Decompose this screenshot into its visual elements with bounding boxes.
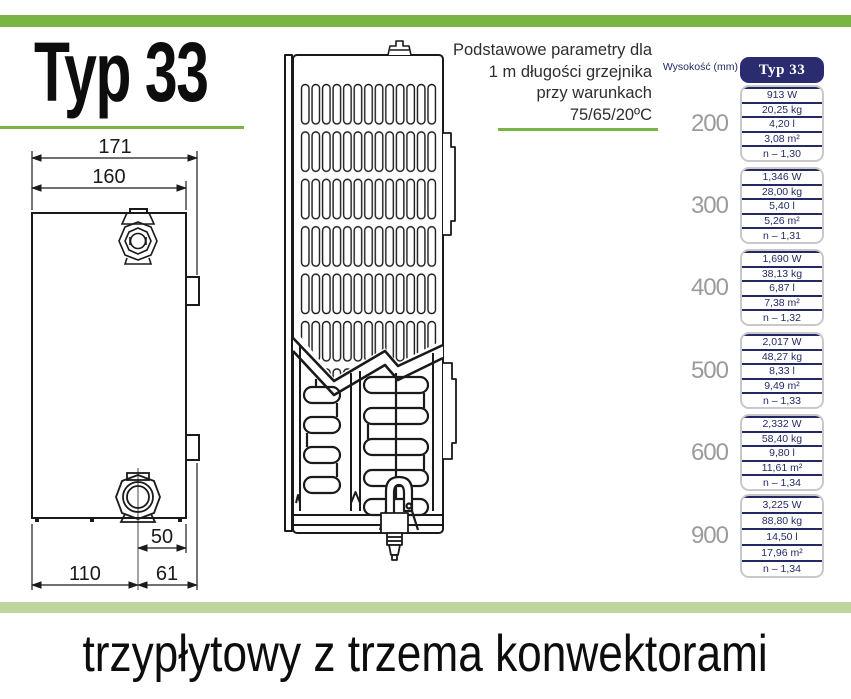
- radiator-front-drawing: [256, 33, 481, 593]
- value-cell: 5,40 l: [742, 200, 822, 215]
- value-cell: 48,27 kg: [742, 351, 822, 366]
- value-cell: n – 1,31: [742, 229, 822, 242]
- table-group-600: 600 2,332 W 58,40 kg 9,80 l 11,61 m² n –…: [610, 414, 824, 491]
- dim-offset-left: 110: [69, 563, 101, 585]
- radiator-side-drawing: 171 160 50 110 61: [15, 138, 215, 603]
- wall-bracket-lower: [186, 435, 199, 460]
- value-cell: 58,40 kg: [742, 433, 822, 448]
- value-cell: 88,80 kg: [742, 514, 822, 530]
- table-group-400: 400 1,690 W 38,13 kg 6,87 l 7,38 m² n – …: [610, 249, 824, 326]
- height-label: 600: [610, 439, 740, 467]
- value-cell: 3,08 m²: [742, 133, 822, 148]
- values-box: 2,332 W 58,40 kg 9,80 l 11,61 m² n – 1,3…: [740, 414, 824, 491]
- value-cell: 913 W: [742, 87, 822, 104]
- footer-caption-wrap: trzypłytowy z trzema konwektorami: [0, 618, 851, 691]
- value-cell: 1,346 W: [742, 169, 822, 186]
- values-box: 1,346 W 28,00 kg 5,40 l 5,26 m² n – 1,31: [740, 167, 824, 244]
- dim-offset-bracket: 61: [156, 563, 178, 585]
- dim-body-width: 160: [92, 166, 125, 188]
- table-group-300: 300 1,346 W 28,00 kg 5,40 l 5,26 m² n – …: [610, 167, 824, 244]
- wall-bracket-upper: [186, 277, 199, 305]
- value-cell: 38,13 kg: [742, 268, 822, 283]
- height-label: 500: [610, 357, 740, 385]
- type-header-pill: Typ 33: [740, 57, 824, 83]
- page-title: Typ 33: [34, 28, 208, 116]
- values-box: 2,017 W 48,27 kg 8,33 l 9,49 m² n – 1,33: [740, 332, 824, 409]
- value-cell: 2,332 W: [742, 416, 822, 433]
- value-cell: 7,38 m²: [742, 297, 822, 312]
- title-underline: [0, 126, 244, 129]
- bottom-green-band: [0, 602, 851, 613]
- drain-valve: [381, 513, 408, 560]
- datasheet-page: Typ 33 Podstawowe parametry dla 1 m dług…: [0, 0, 851, 699]
- value-cell: n – 1,30: [742, 147, 822, 160]
- value-cell: n – 1,34: [742, 476, 822, 489]
- value-cell: 11,61 m²: [742, 462, 822, 477]
- value-cell: 9,49 m²: [742, 380, 822, 395]
- value-cell: 5,26 m²: [742, 215, 822, 230]
- value-cell: 4,20 l: [742, 118, 822, 133]
- value-cell: 1,690 W: [742, 251, 822, 268]
- table-group-200: 200 913 W 20,25 kg 4,20 l 3,08 m² n – 1,…: [610, 85, 824, 162]
- top-air-vent: [388, 41, 411, 55]
- values-box: 913 W 20,25 kg 4,20 l 3,08 m² n – 1,30: [740, 85, 824, 162]
- table-group-500: 500 2,017 W 48,27 kg 8,33 l 9,49 m² n – …: [610, 332, 824, 409]
- value-cell: 28,00 kg: [742, 186, 822, 201]
- values-box: 1,690 W 38,13 kg 6,87 l 7,38 m² n – 1,32: [740, 249, 824, 326]
- dim-total-width: 171: [98, 138, 131, 158]
- value-cell: n – 1,33: [742, 394, 822, 407]
- grille-slot-pattern: [300, 81, 437, 378]
- height-label: 900: [610, 522, 740, 550]
- height-label: 200: [610, 110, 740, 138]
- footer-caption: trzypłytowy z trzema konwektorami: [83, 618, 768, 691]
- dim-offset-right: 50: [151, 526, 173, 548]
- height-label: 300: [610, 192, 740, 220]
- value-cell: n – 1,34: [742, 562, 822, 576]
- value-cell: 9,80 l: [742, 447, 822, 462]
- height-label: 400: [610, 274, 740, 302]
- value-cell: 2,017 W: [742, 334, 822, 351]
- value-cell: 3,225 W: [742, 496, 822, 514]
- value-cell: 8,33 l: [742, 365, 822, 380]
- value-cell: 6,87 l: [742, 282, 822, 297]
- value-cell: 14,50 l: [742, 530, 822, 546]
- values-box: 3,225 W 88,80 kg 14,50 l 17,96 m² n – 1,…: [740, 494, 824, 578]
- value-cell: 20,25 kg: [742, 104, 822, 119]
- wall-brackets-right: [443, 133, 456, 459]
- side-panel-strip: [285, 55, 292, 531]
- table-group-900: 900 3,225 W 88,80 kg 14,50 l 17,96 m² n …: [610, 494, 824, 578]
- value-cell: n – 1,32: [742, 311, 822, 324]
- side-body: [32, 209, 199, 518]
- height-column-header: Wysokość (mm): [610, 61, 738, 73]
- value-cell: 17,96 m²: [742, 546, 822, 562]
